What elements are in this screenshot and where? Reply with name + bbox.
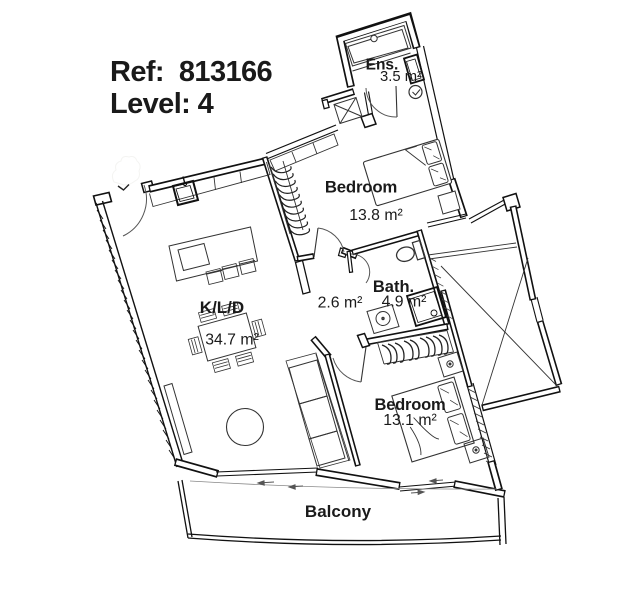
svg-text:Balcony: Balcony (305, 502, 372, 521)
svg-text:Bedroom: Bedroom (325, 178, 397, 197)
svg-text:2.6 m²: 2.6 m² (318, 295, 363, 312)
svg-text:13.1 m²: 13.1 m² (383, 412, 437, 429)
svg-text:34.7 m²: 34.7 m² (205, 332, 259, 349)
svg-text:Level: 4: Level: 4 (110, 88, 214, 120)
svg-text:4.9 m²: 4.9 m² (382, 294, 427, 311)
svg-text:3.5 m²: 3.5 m² (380, 69, 422, 85)
svg-text:K/L/D: K/L/D (200, 298, 244, 317)
svg-text:Ref: 813166: Ref: 813166 (110, 56, 273, 88)
svg-text:13.8 m²: 13.8 m² (349, 207, 403, 224)
